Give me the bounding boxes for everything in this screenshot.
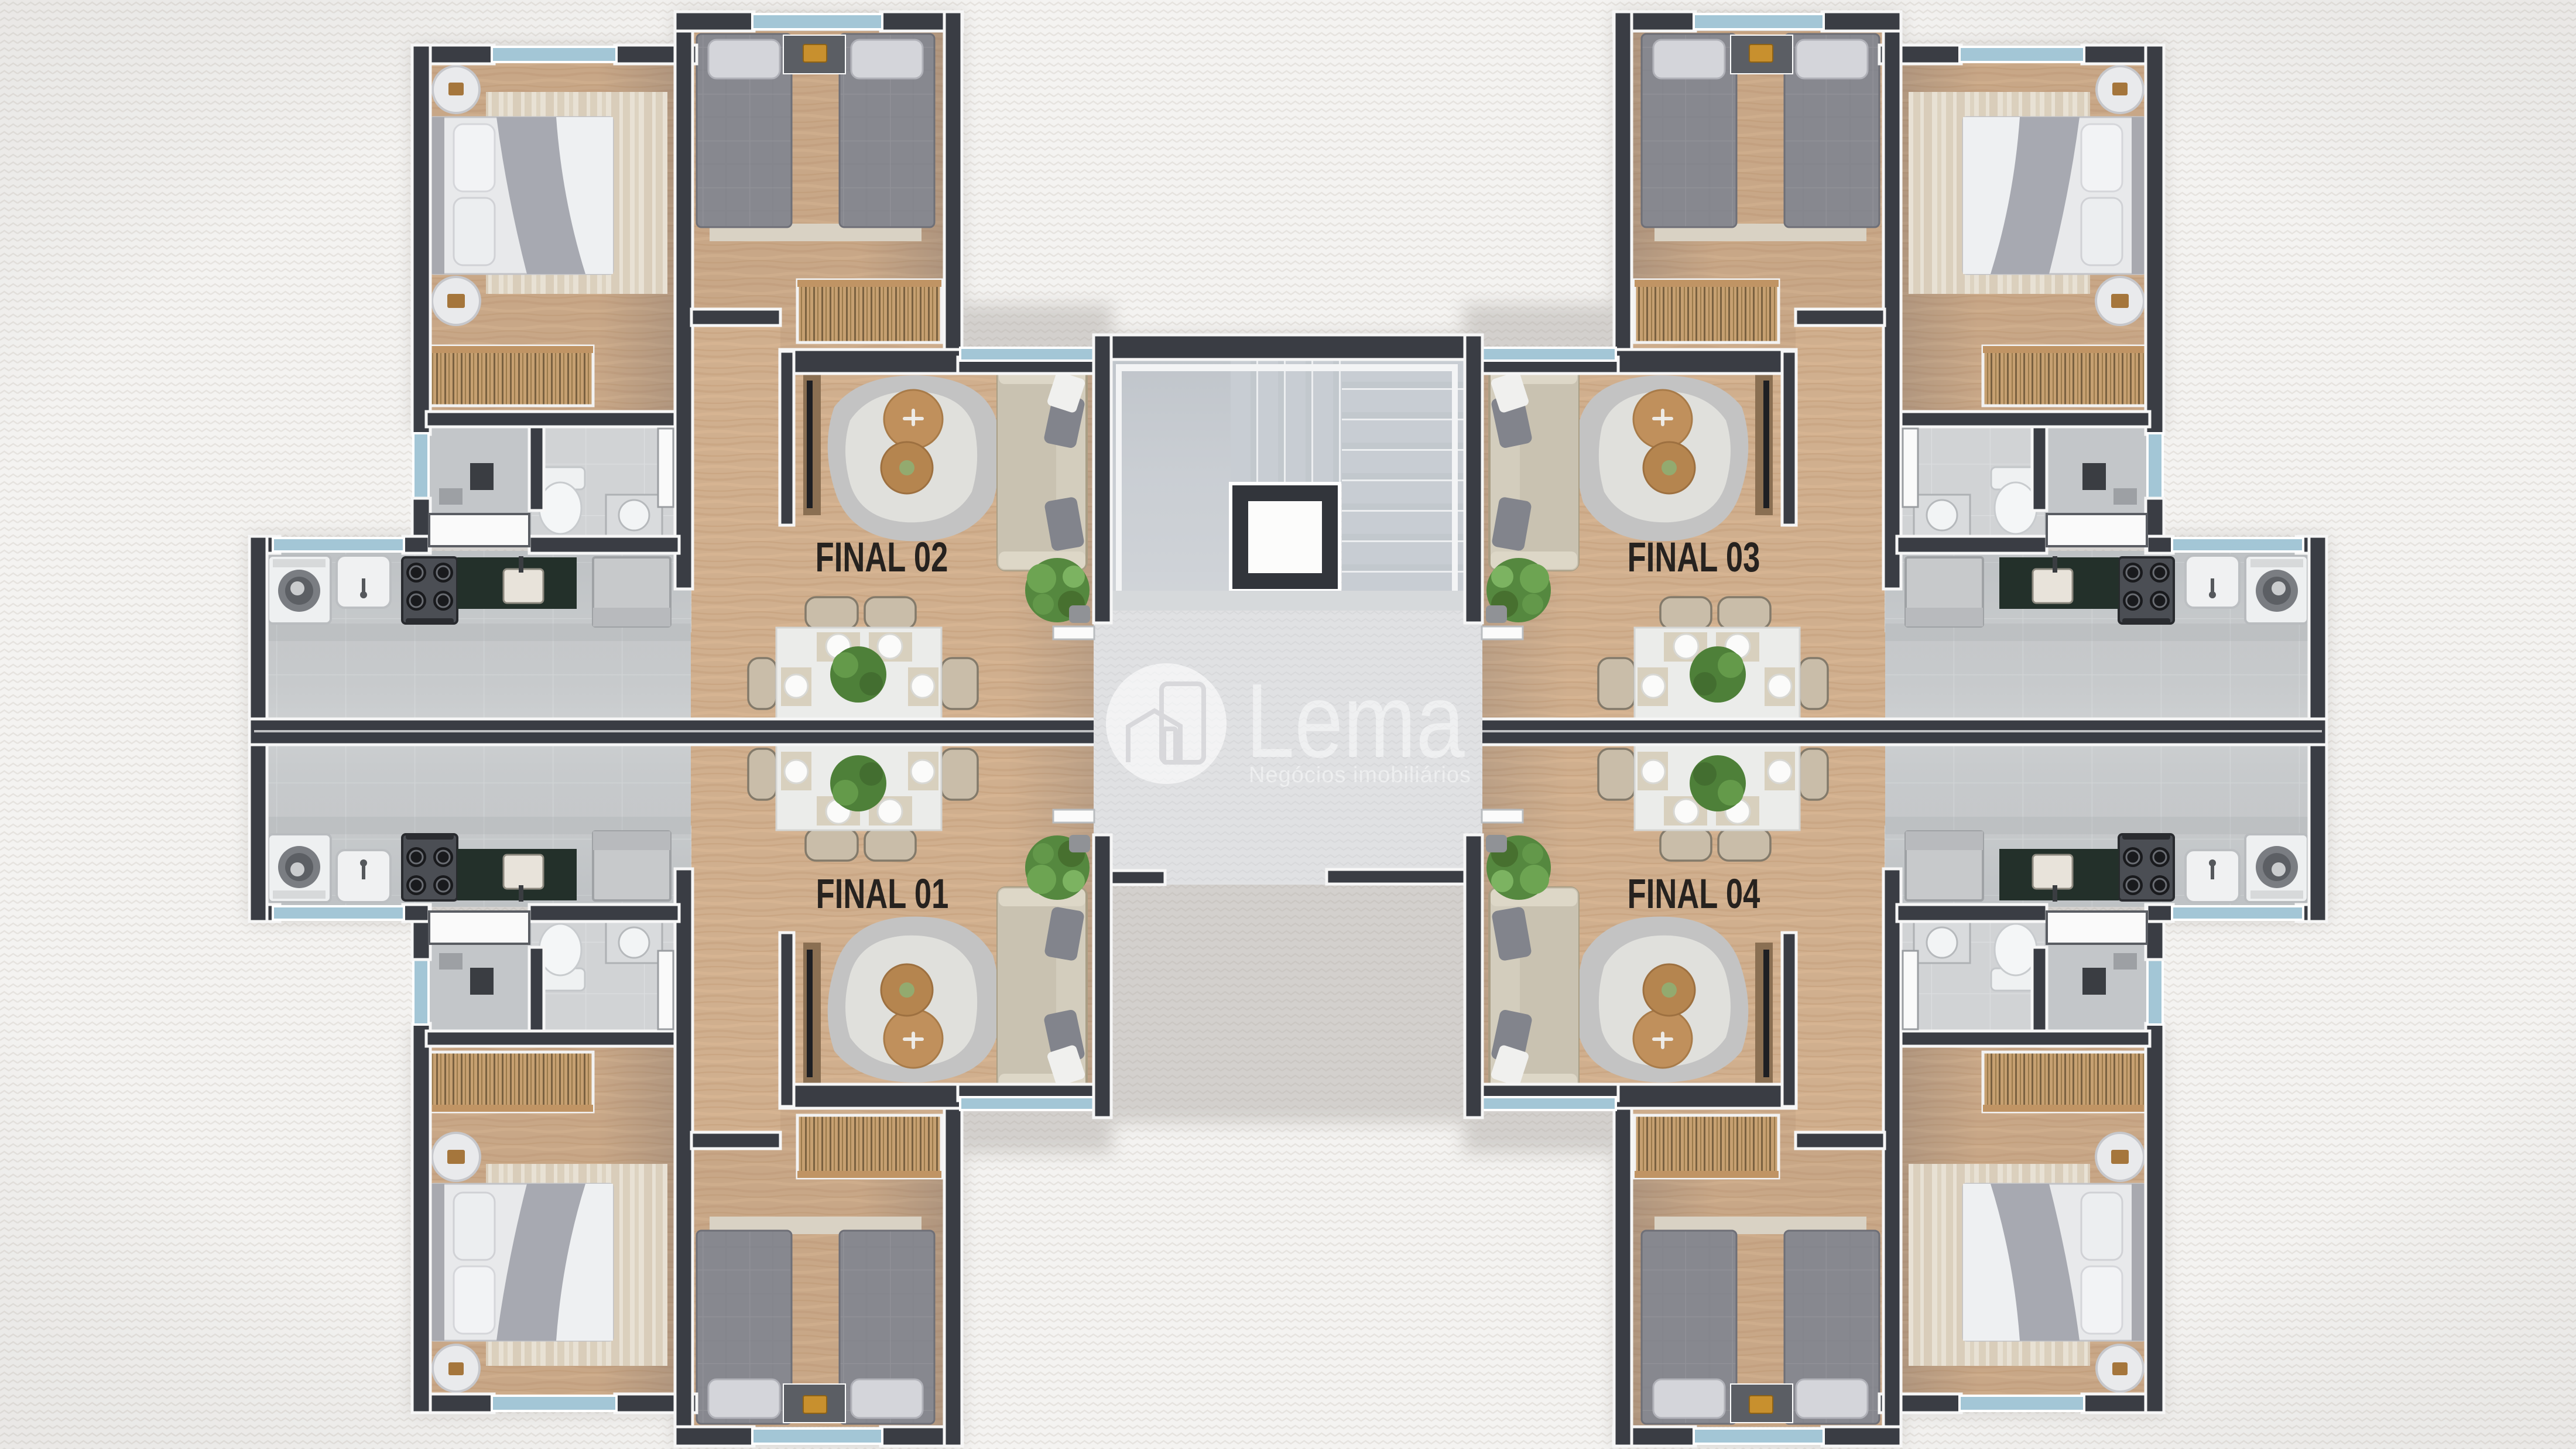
svg-text:FINAL 02: FINAL 02 (816, 534, 948, 581)
svg-text:Negócios imobiliários: Negócios imobiliários (1249, 763, 1471, 787)
svg-text:Lema: Lema (1246, 662, 1465, 780)
svg-text:FINAL 01: FINAL 01 (816, 871, 949, 917)
svg-text:FINAL 03: FINAL 03 (1628, 534, 1760, 581)
svg-text:FINAL 04: FINAL 04 (1628, 871, 1760, 917)
